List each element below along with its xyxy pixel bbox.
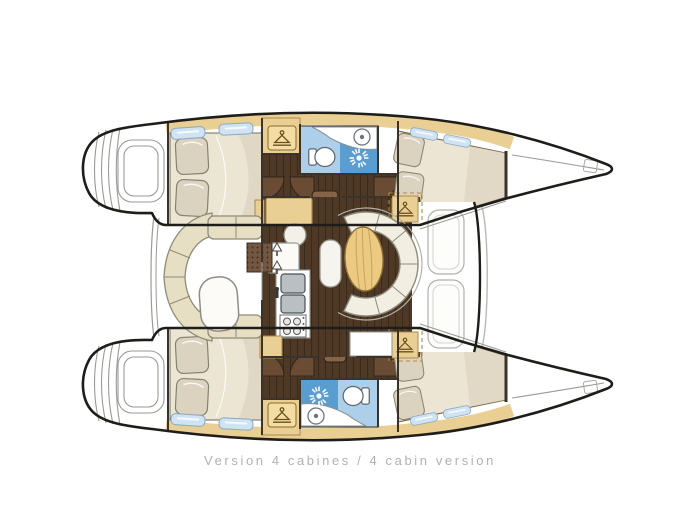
dinette-bench	[320, 240, 341, 287]
cabin-starboard-aft	[170, 328, 262, 430]
deck-hatch	[219, 123, 254, 136]
bathroom-starboard	[300, 379, 378, 427]
deck-hatch	[171, 126, 206, 139]
pillow	[175, 179, 209, 217]
sink-icon	[281, 295, 305, 313]
cabin-port-aft	[170, 123, 262, 225]
cockpit-table	[198, 276, 240, 333]
saloon-cabinet-wood	[260, 336, 282, 358]
floorplan-page: Version 4 cabines / 4 cabin version	[0, 0, 700, 524]
stove-icon	[280, 315, 306, 337]
saloon-cabinet	[350, 332, 392, 356]
deck-grate	[247, 243, 272, 272]
pillow	[175, 378, 209, 416]
sink-icon	[281, 274, 305, 293]
wardrobe-starboard-aft	[262, 399, 300, 435]
bathroom-port	[300, 126, 378, 174]
caption: Version 4 cabines / 4 cabin version	[0, 453, 700, 468]
catamaran-floorplan	[0, 0, 700, 524]
toilet-icon	[343, 387, 369, 406]
shower-sun-icon	[350, 149, 369, 168]
deck-hatch	[171, 413, 206, 426]
cockpit-bench-aft	[208, 216, 262, 239]
pillow	[175, 336, 209, 374]
pillow	[175, 137, 209, 175]
nav-desk	[266, 198, 312, 225]
deck-hatch	[219, 418, 254, 431]
wardrobe-port-aft	[262, 118, 300, 154]
shower-sun-icon	[310, 387, 329, 406]
toilet-icon	[309, 148, 335, 167]
wardrobe-saloon-fwd-starboard	[389, 329, 422, 361]
